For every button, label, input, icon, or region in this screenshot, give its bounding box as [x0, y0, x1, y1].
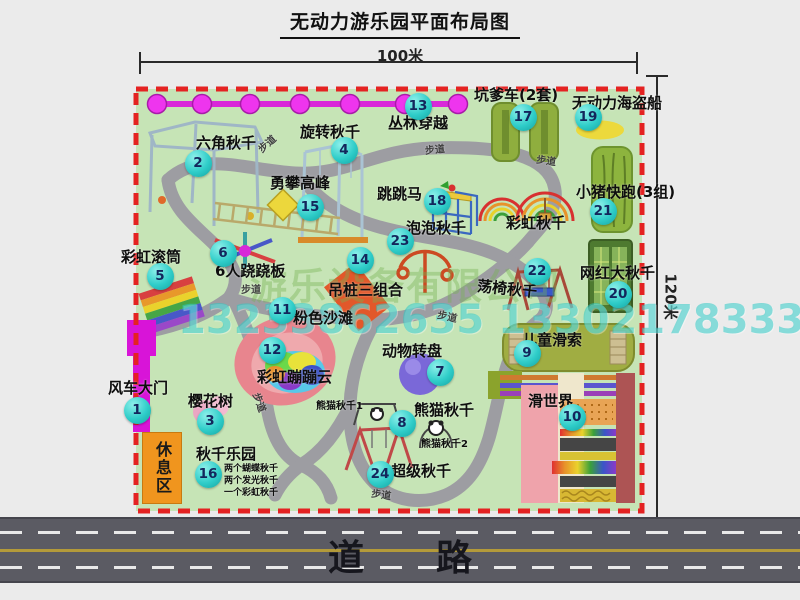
rainbow-cloud-icon	[265, 351, 325, 393]
big-swing-icon	[589, 240, 632, 312]
pirate-ship-icon	[576, 121, 624, 140]
pig-run-icon	[592, 147, 632, 232]
height-dimension-line	[646, 76, 668, 523]
width-dimension-line	[140, 52, 637, 74]
animal-carousel-icon	[399, 353, 441, 395]
road-label: 道 路	[0, 529, 800, 581]
rest-area-box: 休息区	[142, 432, 182, 504]
kids-zipline-icon	[503, 324, 634, 371]
park-layout-plan: 无动力游乐园平面布局图 100米 120米	[0, 0, 800, 600]
park-map-canvas	[0, 0, 800, 600]
road: 道 路	[0, 517, 800, 583]
